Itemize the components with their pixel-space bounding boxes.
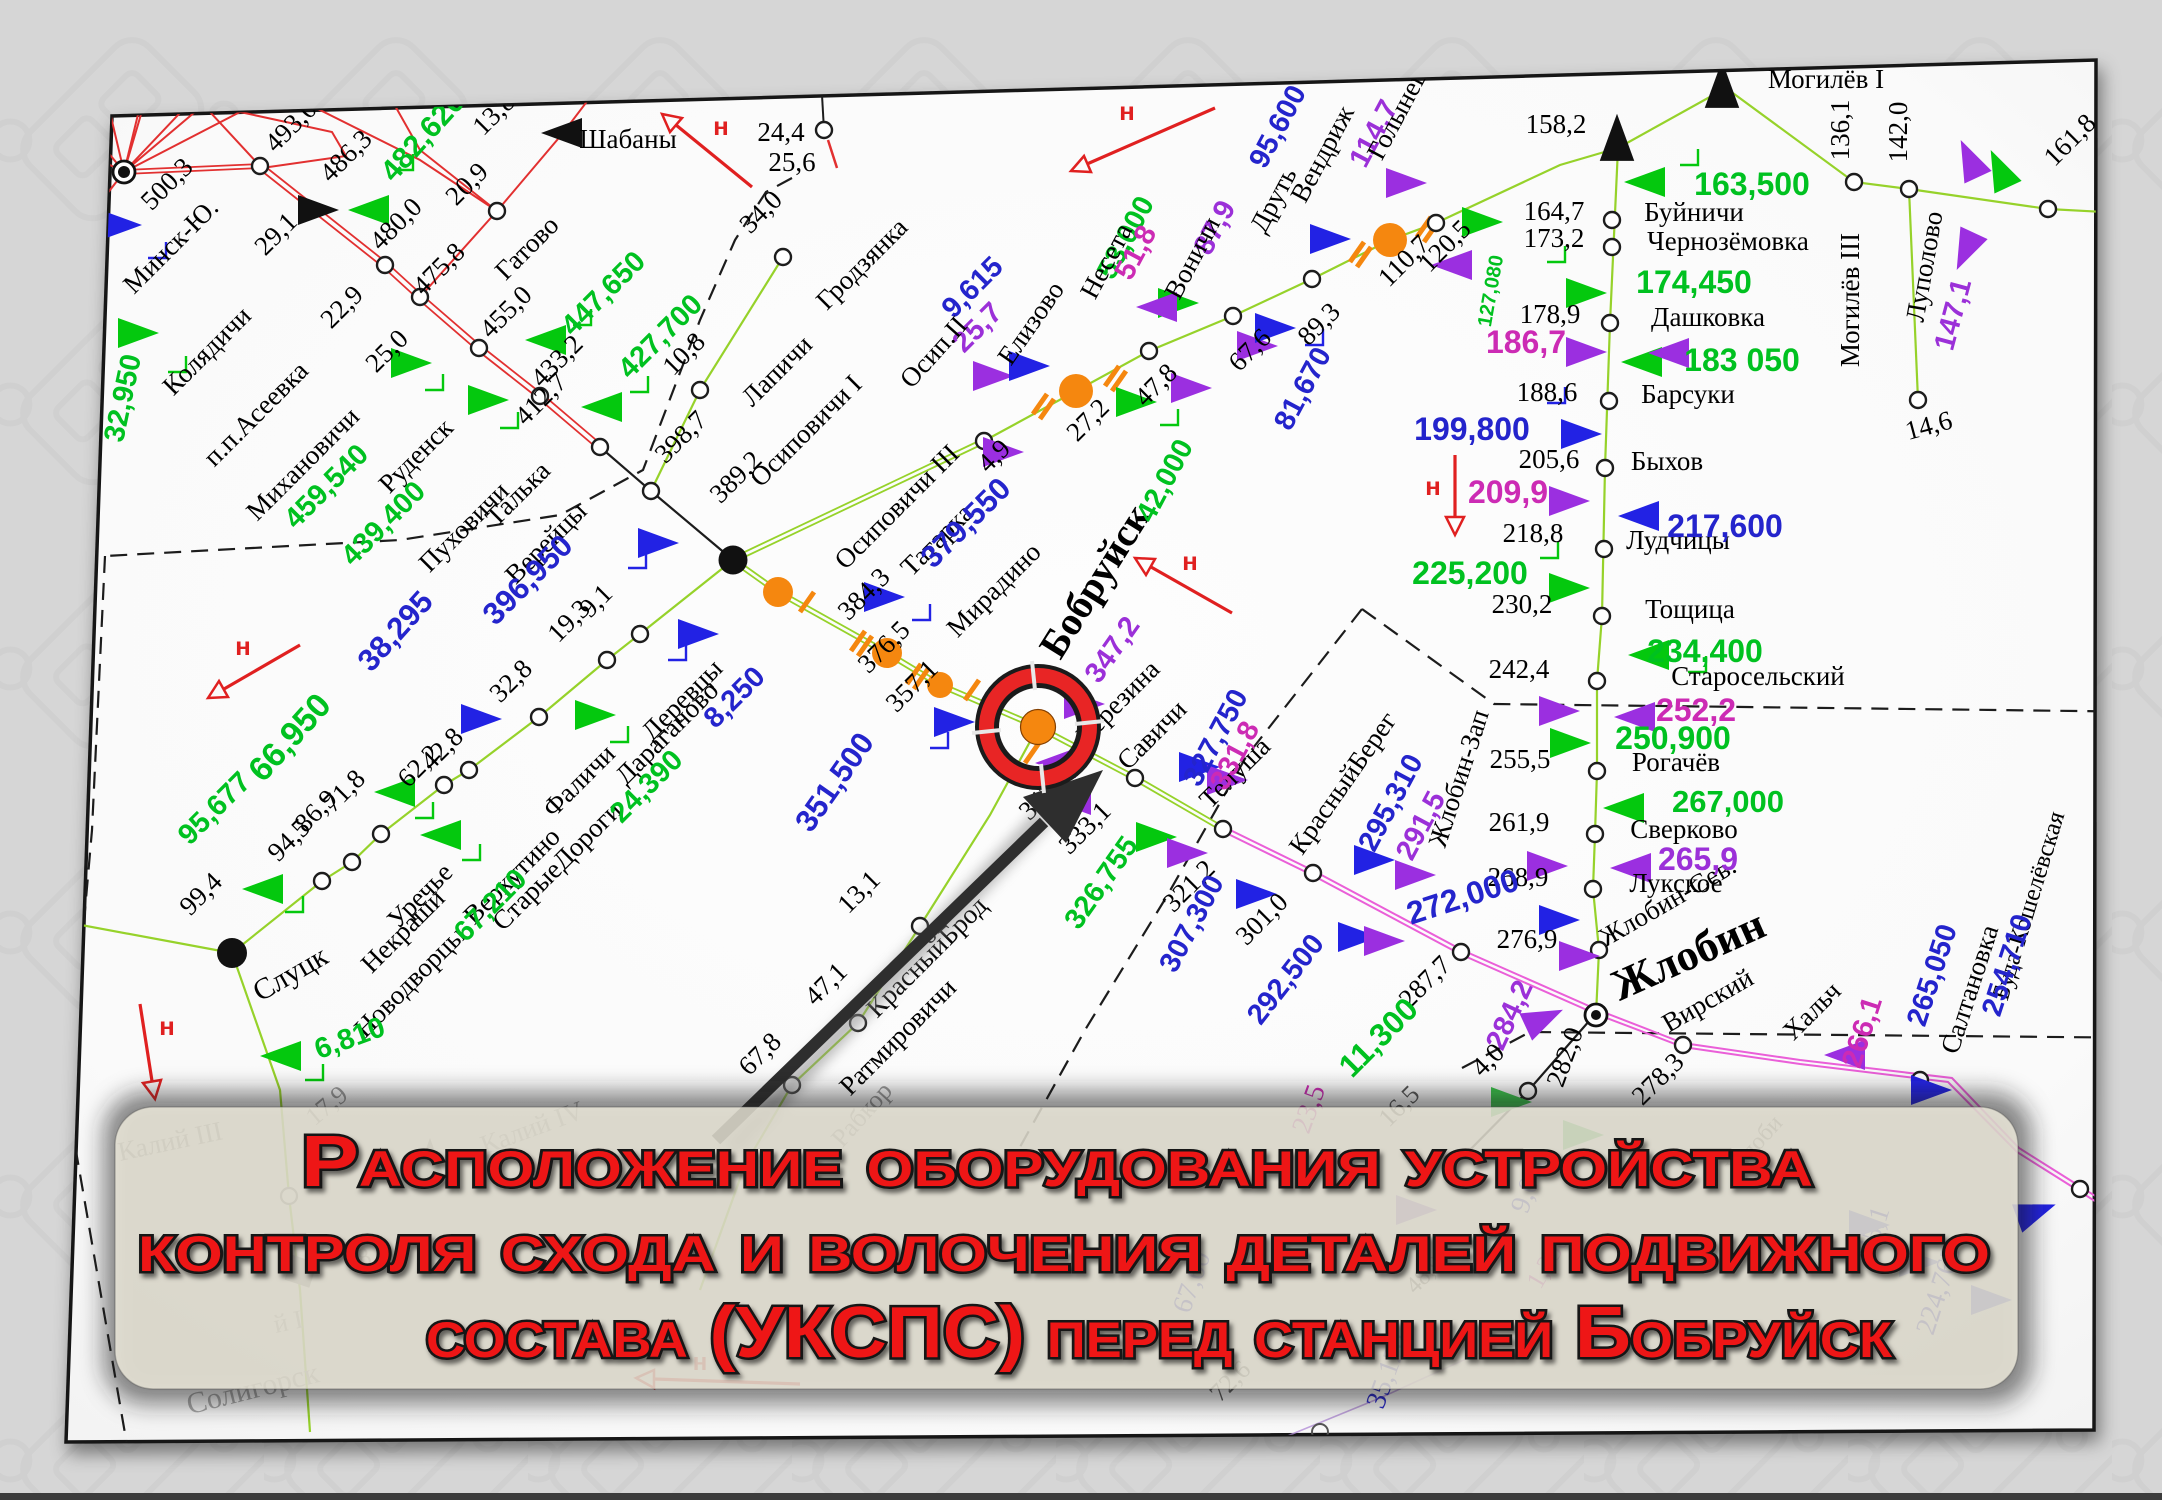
svg-text:183 050: 183 050 (1684, 342, 1800, 378)
svg-text:267,000: 267,000 (1672, 784, 1784, 819)
svg-text:н: н (1425, 471, 1441, 501)
svg-text:242,4: 242,4 (1489, 654, 1550, 684)
svg-text:Расположение оборудования устр: Расположение оборудования устройства (301, 1122, 1813, 1202)
svg-text:199,800: 199,800 (1414, 411, 1530, 447)
svg-text:265,9: 265,9 (1658, 841, 1738, 877)
svg-text:136,1: 136,1 (1825, 100, 1855, 161)
svg-text:261,9: 261,9 (1489, 807, 1550, 837)
svg-text:Дашковка: Дашковка (1651, 302, 1765, 332)
svg-text:188,6: 188,6 (1517, 377, 1578, 407)
svg-text:225,200: 225,200 (1412, 555, 1528, 591)
svg-text:Могилёв III: Могилёв III (1835, 233, 1865, 367)
svg-text:234,400: 234,400 (1647, 633, 1763, 669)
svg-text:Шабаны: Шабаны (579, 124, 677, 154)
svg-text:контроля схода и волочения дет: контроля схода и волочения деталей подви… (138, 1207, 1990, 1287)
svg-text:Барсуки: Барсуки (1641, 379, 1735, 409)
svg-text:255,5: 255,5 (1490, 744, 1551, 774)
svg-text:н: н (1119, 96, 1135, 126)
svg-text:205,6: 205,6 (1519, 444, 1580, 474)
svg-text:186,7: 186,7 (1486, 324, 1566, 360)
svg-text:209,9: 209,9 (1468, 474, 1548, 510)
svg-text:163,500: 163,500 (1694, 166, 1810, 202)
svg-text:состава (УКСПС) перед станцией: состава (УКСПС) перед станцией Бобруйск (426, 1293, 1893, 1373)
svg-text:н: н (1182, 546, 1198, 576)
svg-text:217,600: 217,600 (1667, 508, 1783, 544)
svg-text:174,450: 174,450 (1636, 264, 1752, 300)
svg-text:н: н (159, 1011, 175, 1041)
svg-text:24,4: 24,4 (757, 117, 805, 147)
svg-text:164,7: 164,7 (1524, 196, 1585, 226)
svg-text:25,6: 25,6 (768, 147, 815, 177)
svg-text:н: н (235, 631, 251, 661)
svg-text:н: н (713, 111, 729, 141)
svg-text:218,8: 218,8 (1503, 518, 1564, 548)
svg-text:Тощица: Тощица (1645, 594, 1735, 624)
svg-text:230,2: 230,2 (1492, 589, 1553, 619)
svg-text:142,0: 142,0 (1883, 102, 1913, 163)
svg-text:276,9: 276,9 (1497, 924, 1558, 954)
svg-text:Чернозёмовка: Чернозёмовка (1647, 226, 1809, 256)
svg-text:173,2: 173,2 (1524, 223, 1585, 253)
svg-text:Быхов: Быхов (1631, 446, 1703, 476)
svg-text:158,2: 158,2 (1526, 109, 1587, 139)
svg-text:252,2: 252,2 (1656, 692, 1736, 728)
